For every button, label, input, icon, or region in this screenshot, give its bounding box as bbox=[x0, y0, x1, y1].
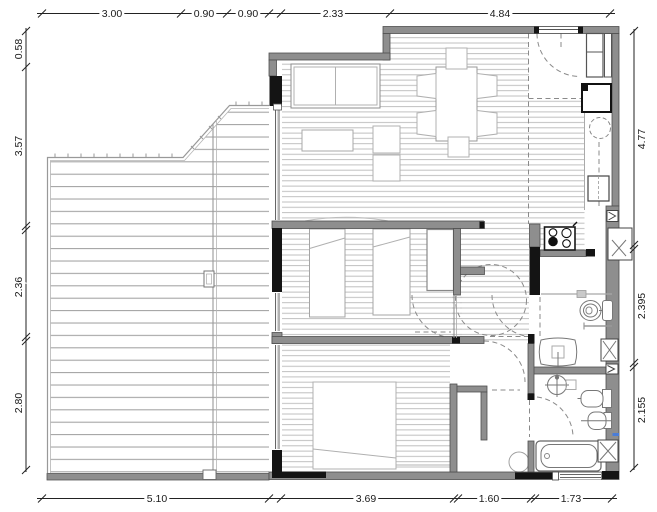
svg-text:2.395: 2.395 bbox=[636, 293, 648, 319]
svg-text:4.84: 4.84 bbox=[490, 8, 511, 20]
svg-text:3.57: 3.57 bbox=[13, 136, 25, 157]
svg-text:3.00: 3.00 bbox=[102, 8, 123, 20]
svg-text:1.73: 1.73 bbox=[561, 493, 582, 505]
svg-text:2.80: 2.80 bbox=[13, 393, 25, 414]
svg-text:5.10: 5.10 bbox=[147, 493, 168, 505]
svg-text:4.77: 4.77 bbox=[636, 129, 648, 150]
svg-text:0.90: 0.90 bbox=[194, 8, 215, 20]
svg-text:2.155: 2.155 bbox=[636, 397, 648, 423]
svg-text:3.69: 3.69 bbox=[356, 493, 377, 505]
svg-text:1.60: 1.60 bbox=[479, 493, 500, 505]
svg-text:2.36: 2.36 bbox=[13, 277, 25, 298]
svg-text:0.58: 0.58 bbox=[13, 39, 25, 60]
svg-text:2.33: 2.33 bbox=[323, 8, 344, 20]
svg-text:0.90: 0.90 bbox=[238, 8, 259, 20]
